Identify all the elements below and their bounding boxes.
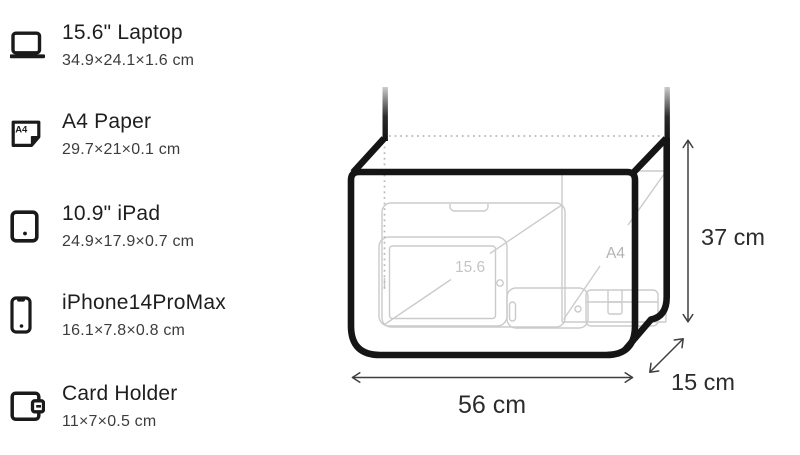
- ipad-outline: [379, 237, 507, 326]
- depth-label: 15 cm: [671, 369, 735, 395]
- depth-arrow: [650, 339, 683, 372]
- height-arrow: [683, 140, 693, 322]
- bag-top-left-edge: [353, 139, 384, 173]
- laptop-size-label: 15.6: [455, 259, 485, 276]
- bag-diagram: A4 15.6: [0, 0, 800, 455]
- width-label: 56 cm: [458, 391, 526, 419]
- a4-paper-label: A4: [606, 245, 625, 262]
- bag-strap-right: [665, 87, 670, 141]
- bag-top-right-edge: [634, 139, 667, 173]
- height-label: 37 cm: [701, 224, 765, 250]
- bag-strap-left: [383, 87, 388, 141]
- width-arrow: [352, 373, 632, 382]
- bag-size-guide: 15.6" Laptop 34.9×24.1×1.6 cm A4 A4 Pape…: [0, 0, 800, 455]
